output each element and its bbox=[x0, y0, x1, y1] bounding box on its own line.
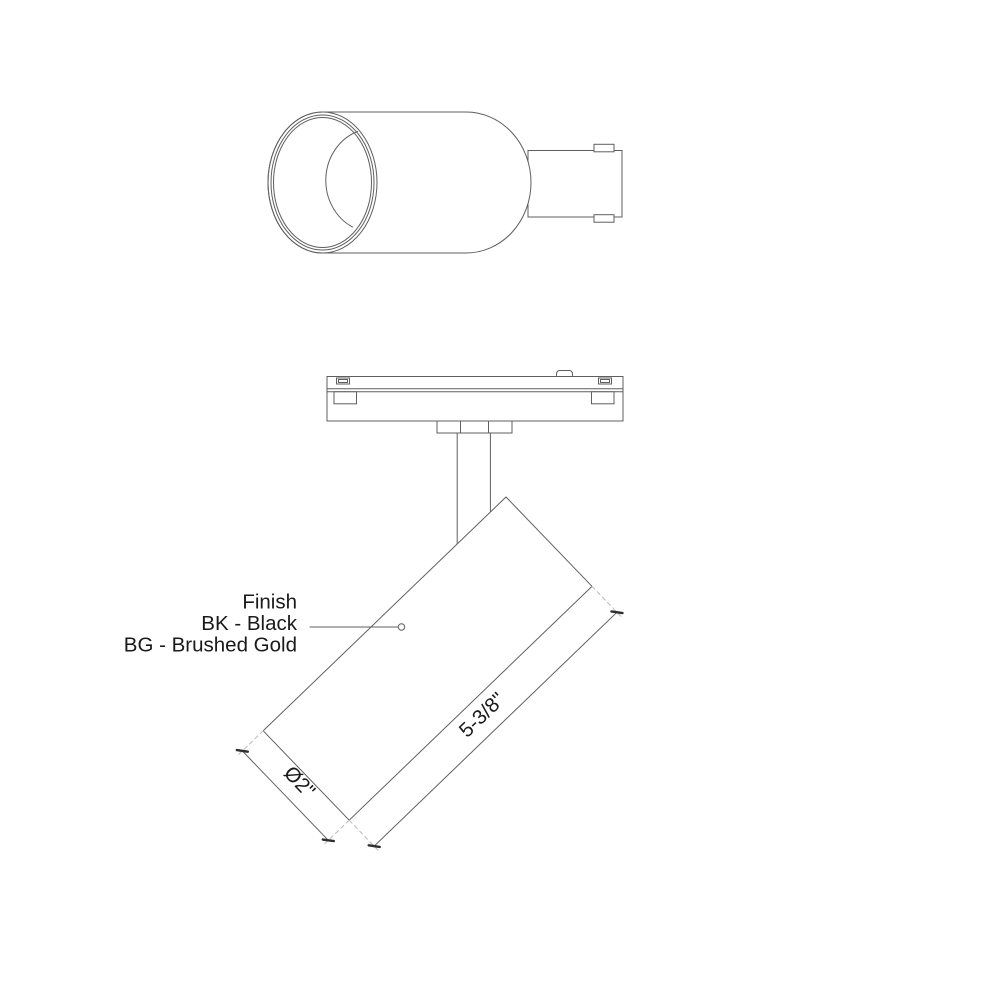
track-connector-stub bbox=[528, 144, 622, 222]
finish-note-option-black: BK - Black bbox=[201, 612, 297, 635]
linework-layer bbox=[237, 112, 623, 851]
length-tick-top bbox=[612, 611, 623, 613]
adapter-hook-right bbox=[592, 392, 615, 404]
track-adapter bbox=[327, 371, 623, 434]
track-light-spec-drawing: 5-3/8" Ø2" Finish BK - Black BG - Brushe… bbox=[0, 0, 1000, 1000]
side-view-drawing bbox=[263, 371, 623, 821]
connector-tab-top bbox=[594, 144, 614, 152]
finish-leader-dot bbox=[398, 624, 404, 630]
front-view-drawing bbox=[268, 112, 622, 253]
connector-body bbox=[528, 151, 622, 218]
connector-tab-bottom bbox=[594, 215, 614, 223]
adapter-release-button bbox=[557, 371, 573, 377]
finish-note: Finish BK - Black BG - Brushed Gold bbox=[124, 591, 298, 657]
fixture-body-silhouette bbox=[268, 112, 531, 253]
adapter-housing bbox=[327, 377, 623, 422]
finish-note-option-gold: BG - Brushed Gold bbox=[124, 634, 297, 657]
length-tick-bottom bbox=[369, 845, 380, 847]
finish-note-title: Finish bbox=[242, 591, 297, 614]
swivel-block bbox=[437, 421, 512, 433]
technical-drawing-canvas: 5-3/8" Ø2" Finish BK - Black BG - Brushe… bbox=[0, 0, 1000, 1000]
diameter-tick-right bbox=[323, 840, 334, 842]
fixture-head bbox=[263, 497, 592, 820]
adapter-hook-left bbox=[334, 392, 357, 404]
diameter-tick-left bbox=[237, 750, 248, 752]
